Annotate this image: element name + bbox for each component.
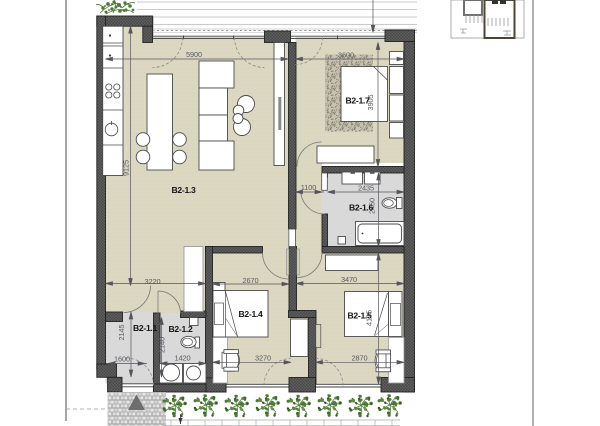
svg-text:2435: 2435 — [358, 184, 374, 193]
svg-text:B2-1.7: B2-1.7 — [346, 96, 371, 106]
svg-text:B2-1.6: B2-1.6 — [349, 203, 374, 213]
svg-text:1100: 1100 — [301, 183, 317, 192]
svg-text:1420: 1420 — [174, 354, 190, 363]
svg-text:B2-1.5: B2-1.5 — [348, 311, 373, 321]
svg-text:2140: 2140 — [158, 337, 167, 353]
svg-text:2145: 2145 — [117, 324, 126, 340]
svg-text:3600: 3600 — [338, 51, 354, 60]
svg-text:2670: 2670 — [242, 276, 258, 285]
svg-text:B2-1.1: B2-1.1 — [133, 323, 158, 333]
svg-text:B2-1.3: B2-1.3 — [172, 185, 197, 195]
svg-text:5900: 5900 — [186, 50, 202, 59]
svg-text:3470: 3470 — [341, 275, 357, 284]
svg-text:B2-1.4: B2-1.4 — [239, 309, 264, 319]
svg-text:3270: 3270 — [255, 354, 271, 363]
svg-text:2870: 2870 — [351, 354, 367, 363]
svg-text:9125: 9125 — [122, 160, 131, 176]
svg-text:1600: 1600 — [114, 355, 130, 364]
svg-text:B2-1.2: B2-1.2 — [169, 324, 194, 334]
svg-text:3220: 3220 — [144, 277, 160, 286]
